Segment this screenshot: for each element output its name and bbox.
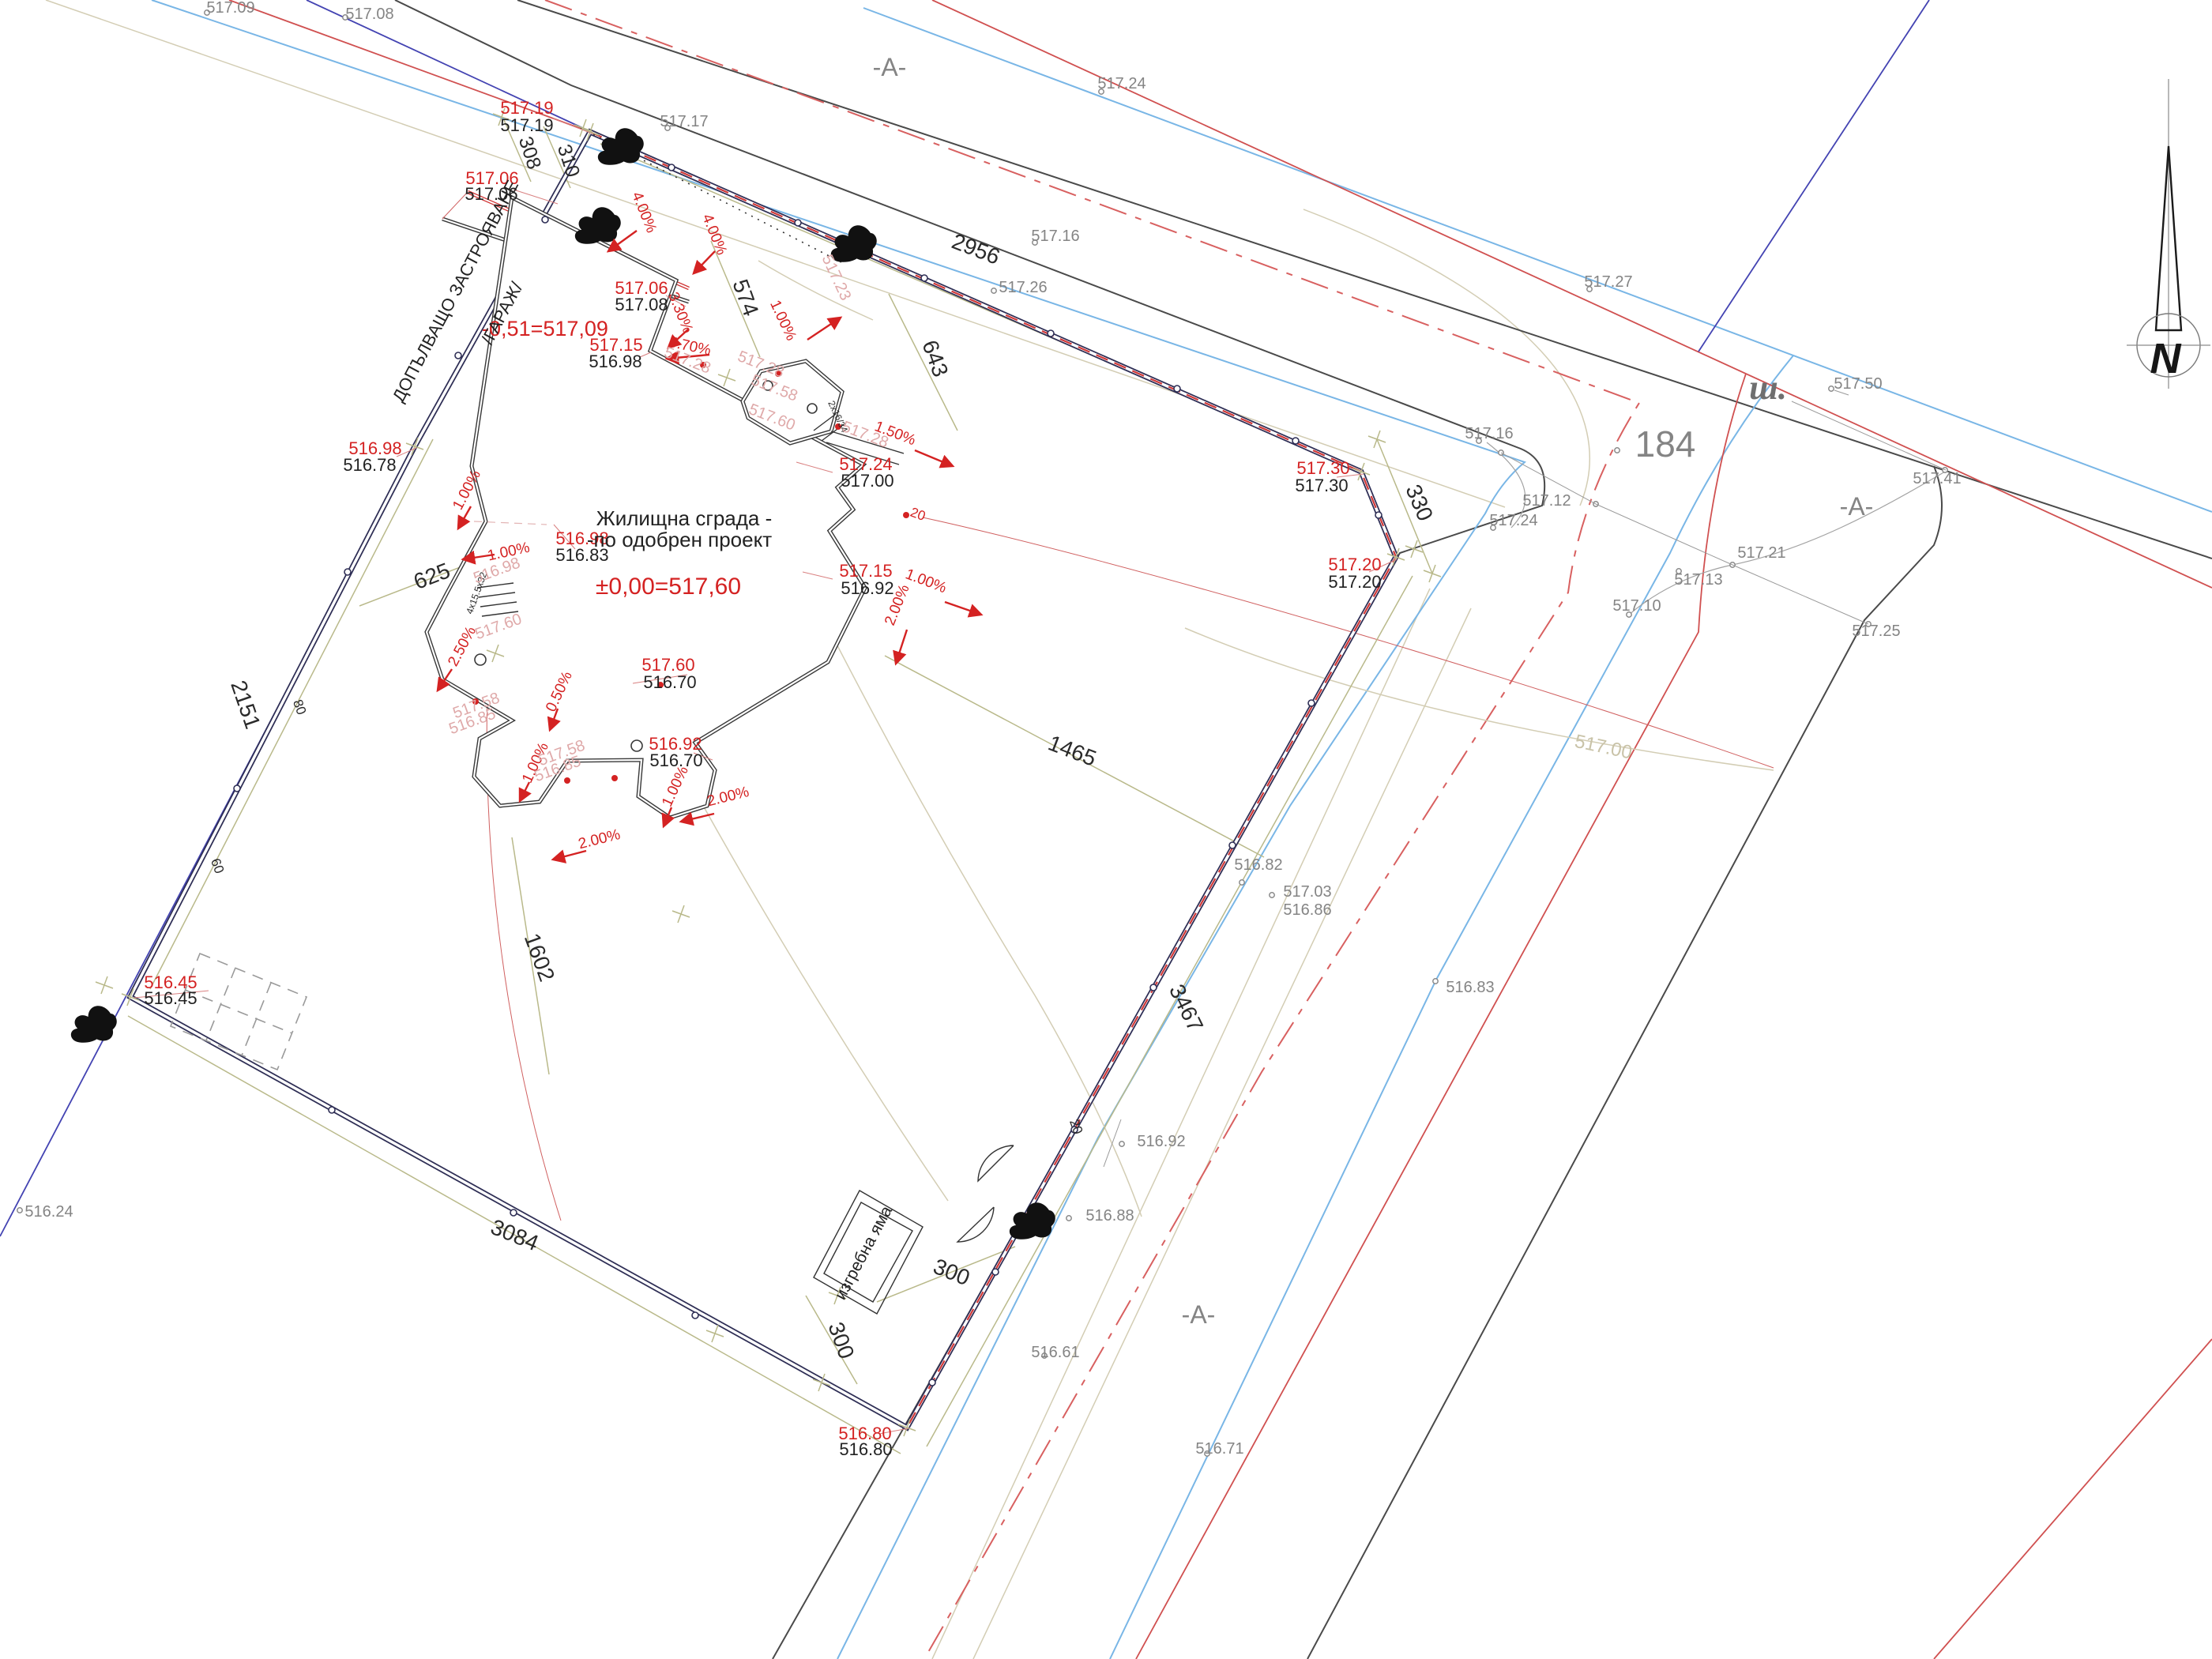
elev-grey: 517.09 [206, 0, 254, 17]
slope-arrow [896, 630, 907, 664]
axis-label: -А- [1840, 492, 1874, 521]
survey-point [1066, 1216, 1071, 1221]
junction-curve-grey [1629, 472, 1945, 615]
fence-post [234, 785, 240, 792]
elev-existing: 516.78 [343, 455, 396, 475]
dim: 330 [1401, 481, 1438, 525]
elev-grey: 516.86 [1283, 901, 1331, 919]
fence-post [455, 352, 461, 359]
dim-small-red: 20 [908, 505, 927, 524]
elev-grey: 516.92 [1137, 1133, 1185, 1150]
leader-line [1104, 1119, 1121, 1167]
fence-post [668, 164, 675, 171]
elev-existing: 516.92 [841, 578, 893, 598]
dim: 1602 [520, 930, 559, 984]
leader-line [1792, 401, 1946, 470]
survey-point [1240, 880, 1244, 885]
slope: 3.30% [664, 290, 696, 336]
site-features [171, 954, 1014, 1314]
survey-tick [718, 369, 735, 386]
regulation-red-corner [1934, 1339, 2212, 1659]
elev-grey: 517.08 [345, 6, 393, 23]
axis-label: -А- [1182, 1300, 1216, 1329]
dim-small: 60 [208, 856, 227, 875]
elev-existing: 516.45 [144, 988, 197, 1008]
contour-label: 517.00 [1573, 731, 1634, 764]
street-abbrev: ш. [1749, 368, 1787, 407]
survey-point [1615, 448, 1619, 453]
cesspit-label: изгребна яма [831, 1203, 896, 1303]
elev-grey: 516.24 [24, 1203, 73, 1221]
elev-grey: 517.16 [1031, 228, 1079, 245]
elev-existing: 517.30 [1295, 476, 1348, 495]
elev-existing: 517.08 [615, 295, 668, 314]
leader-line [1732, 565, 1868, 624]
elev-grey: 517.24 [1489, 512, 1537, 529]
fence-post [921, 275, 927, 281]
elev-existing: 516.98 [589, 352, 641, 371]
elev-existing: 516.80 [839, 1439, 892, 1459]
road-edge-branch-east [1307, 466, 1942, 1659]
fence-post [992, 1269, 999, 1275]
slope: 1.00% [766, 298, 799, 344]
elev-grey: 517.21 [1737, 544, 1785, 562]
neighbor-boundary [1698, 0, 1929, 352]
old-cadastre-line [932, 589, 1430, 1659]
elev-grey: 517.24 [1097, 75, 1145, 92]
tree-icon [598, 128, 644, 165]
dim: 625 [410, 558, 453, 594]
elev-grey: 516.82 [1234, 856, 1282, 874]
fence-post [1375, 512, 1382, 518]
slope-arrow [915, 450, 953, 466]
survey-point [1270, 893, 1274, 897]
regulation-red-branch [1136, 374, 1746, 1659]
dim: 574 [728, 276, 763, 319]
slope: 4.00% [698, 212, 730, 258]
elev-grey: 517.25 [1852, 623, 1900, 640]
fence-post [542, 216, 548, 223]
survey-point [17, 1208, 22, 1213]
fence-post [1150, 984, 1157, 991]
elev-grey: 517.17 [660, 113, 708, 130]
elev-grey: 516.88 [1085, 1207, 1134, 1224]
boundary-outline [130, 132, 1396, 1428]
slope-arrow [807, 318, 841, 340]
plot-boundary [130, 128, 1396, 1428]
water-line-far [863, 8, 2212, 512]
fence-post [692, 1312, 698, 1319]
design-point [564, 777, 570, 784]
elev-grey: 517.03 [1283, 883, 1331, 901]
dim: 643 [917, 337, 953, 380]
slope-arrow [945, 602, 981, 615]
dim: 2151 [226, 677, 265, 732]
porch-column [807, 404, 817, 413]
elev-grey: 517.13 [1674, 571, 1722, 589]
elev-grey: 516.71 [1195, 1440, 1243, 1458]
fence-post [929, 1379, 935, 1386]
building-subtitle: -по одобрен проект [587, 528, 772, 551]
contour-517 [1185, 628, 1774, 770]
elev-grey: 517.16 [1465, 425, 1513, 442]
porch-column [475, 654, 486, 665]
tree-icon [71, 1006, 117, 1043]
main-level-note: ±0,00=517,60 [596, 574, 741, 600]
dim: 1465 [1045, 730, 1100, 770]
elev-grey: 517.26 [999, 279, 1047, 296]
fence-post [344, 569, 351, 575]
site-plan-canvas: 517.09517.08517.17517.24517.16517.26517.… [0, 0, 2212, 1659]
elev-grey: 516.61 [1031, 1344, 1079, 1361]
fence-post [1308, 700, 1315, 706]
annotation-layer: 517.09517.08517.17517.24517.16517.26517.… [17, 0, 2182, 1459]
elev-grey: 516.83 [1446, 979, 1494, 996]
survey-tick [1368, 431, 1386, 448]
slope: 4.00% [628, 190, 660, 235]
survey-point [1829, 386, 1834, 391]
elev-grey: 517.41 [1913, 470, 1961, 487]
leader-line [553, 118, 590, 133]
survey-tick [672, 905, 690, 923]
fence-post [1048, 330, 1054, 337]
elev-grey: 517.50 [1834, 375, 1882, 393]
neighbor-boundaries [0, 0, 1929, 1236]
survey-point [1433, 979, 1438, 984]
tree-icon [575, 207, 621, 244]
elev-existing: 516.70 [643, 672, 696, 692]
fence-post [329, 1107, 335, 1113]
slope-arrow [694, 251, 715, 273]
gate-arc [957, 1207, 994, 1242]
fence-post [1229, 842, 1236, 848]
fence-post [1292, 438, 1299, 444]
axis-label: -А- [873, 53, 907, 81]
elev-existing: 517.19 [500, 115, 553, 135]
tree-icon [1010, 1202, 1055, 1240]
gate-arc [978, 1145, 1014, 1181]
porch-column [631, 740, 642, 751]
survey-tick [1424, 565, 1441, 582]
survey-point [991, 288, 996, 293]
elev-grey: 517.10 [1612, 597, 1661, 615]
building-title: Жилищна сграда - [596, 506, 773, 530]
fence-post [1174, 386, 1180, 392]
design-point [611, 775, 618, 781]
survey-tick [96, 976, 113, 994]
water-line-branch [1110, 355, 1793, 1659]
elev-existing: 517.20 [1328, 572, 1381, 592]
fence-post [510, 1209, 517, 1216]
north-letter: N [2150, 335, 2182, 382]
elev-grey: 517.27 [1584, 273, 1632, 291]
dim: 2956 [949, 228, 1003, 269]
dim: 300 [930, 1254, 973, 1290]
survey-point [1119, 1142, 1124, 1146]
elev-grey: 517.12 [1522, 492, 1571, 510]
dim: 300 [823, 1319, 859, 1362]
fence-post [795, 220, 801, 226]
parcel-number: 184 [1635, 423, 1696, 465]
road-lines [46, 0, 2212, 1659]
elev-existing: 517.00 [841, 471, 893, 491]
dim: 308 [514, 134, 546, 171]
dim-small: 80 [290, 698, 309, 717]
slope: 2.00% [577, 826, 622, 852]
